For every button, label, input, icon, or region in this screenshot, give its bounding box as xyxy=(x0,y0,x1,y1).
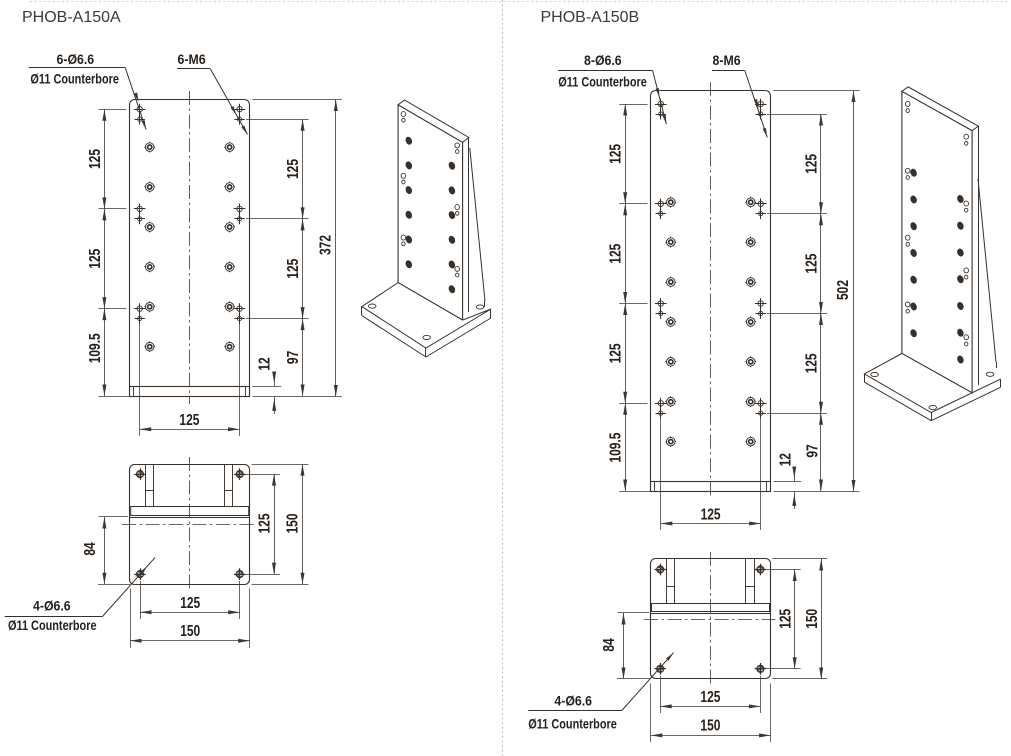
svg-text:6-M6: 6-M6 xyxy=(178,51,206,67)
svg-text:Ø11 Counterbore: Ø11 Counterbore xyxy=(558,74,647,90)
svg-text:PHOB-A150A: PHOB-A150A xyxy=(22,9,121,26)
svg-text:PHOB-A150B: PHOB-A150B xyxy=(541,9,640,26)
svg-text:502: 502 xyxy=(833,280,851,300)
svg-text:109.5: 109.5 xyxy=(85,333,103,363)
svg-text:372: 372 xyxy=(316,235,334,255)
svg-text:125: 125 xyxy=(283,159,301,179)
svg-text:125: 125 xyxy=(606,144,624,164)
svg-text:109.5: 109.5 xyxy=(606,432,624,462)
svg-text:125: 125 xyxy=(283,259,301,279)
svg-text:12: 12 xyxy=(255,357,273,370)
svg-text:125: 125 xyxy=(701,505,721,523)
svg-text:125: 125 xyxy=(700,687,720,705)
svg-text:125: 125 xyxy=(606,343,624,363)
svg-text:125: 125 xyxy=(802,253,820,273)
svg-text:Ø11 Counterbore: Ø11 Counterbore xyxy=(8,618,97,634)
svg-text:4-Ø6.6: 4-Ø6.6 xyxy=(554,693,592,709)
svg-text:8-M6: 8-M6 xyxy=(713,52,741,68)
svg-text:125: 125 xyxy=(802,353,820,373)
svg-text:125: 125 xyxy=(179,410,199,428)
svg-text:125: 125 xyxy=(85,249,103,269)
svg-text:8-Ø6.6: 8-Ø6.6 xyxy=(584,52,622,68)
svg-text:Ø11 Counterbore: Ø11 Counterbore xyxy=(528,716,617,732)
svg-text:150: 150 xyxy=(700,716,720,734)
svg-text:125: 125 xyxy=(802,154,820,174)
svg-text:Ø11 Counterbore: Ø11 Counterbore xyxy=(30,71,119,87)
svg-text:150: 150 xyxy=(802,609,820,629)
svg-text:150: 150 xyxy=(180,621,200,639)
svg-text:125: 125 xyxy=(85,149,103,169)
svg-text:4-Ø6.6: 4-Ø6.6 xyxy=(33,598,71,614)
svg-text:97: 97 xyxy=(803,444,821,457)
svg-text:150: 150 xyxy=(283,513,301,533)
svg-text:125: 125 xyxy=(606,244,624,264)
svg-text:12: 12 xyxy=(776,453,794,466)
svg-text:84: 84 xyxy=(599,638,617,651)
svg-text:125: 125 xyxy=(776,609,794,629)
svg-text:125: 125 xyxy=(180,593,200,611)
svg-text:97: 97 xyxy=(283,351,301,364)
svg-text:125: 125 xyxy=(255,513,273,533)
svg-text:6-Ø6.6: 6-Ø6.6 xyxy=(57,51,95,67)
svg-text:84: 84 xyxy=(80,542,98,555)
